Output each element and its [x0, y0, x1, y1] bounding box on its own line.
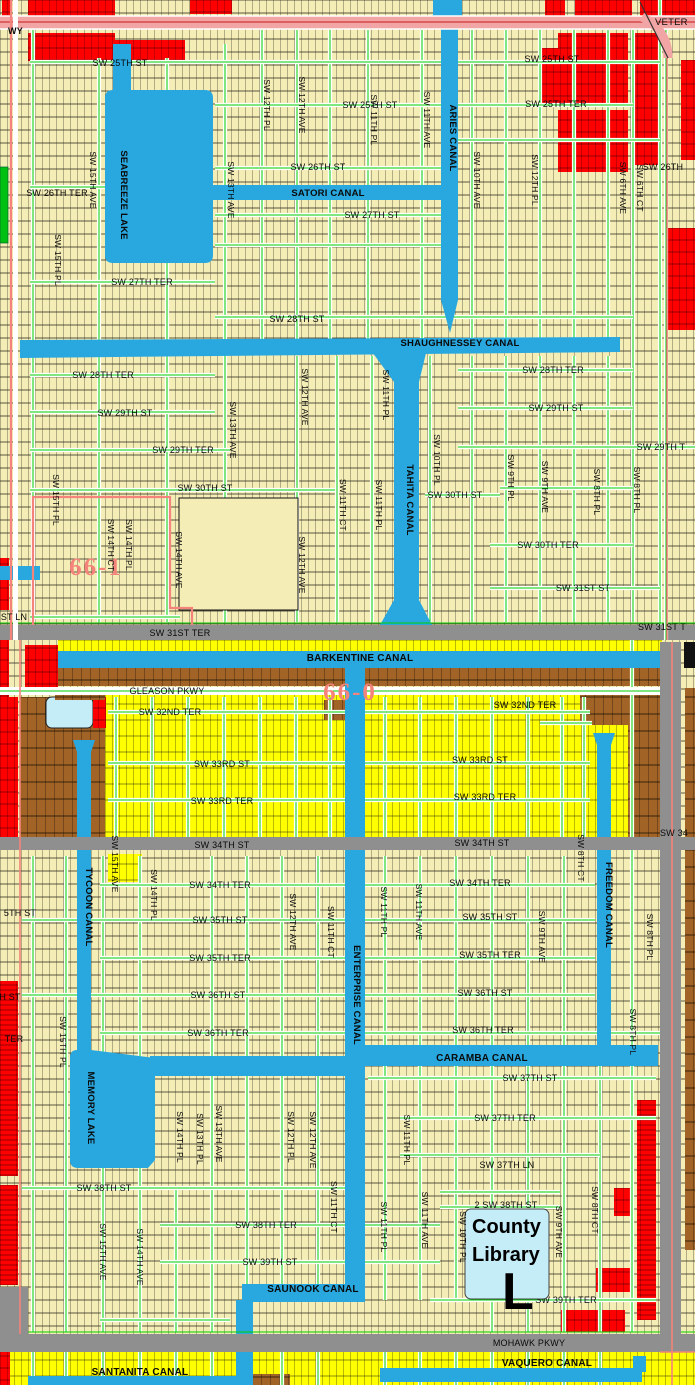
svg-text:SW 34TH TER: SW 34TH TER — [449, 878, 511, 888]
svg-text:SW 37TH TER: SW 37TH TER — [474, 1113, 536, 1123]
svg-text:SW 11TH AVE: SW 11TH AVE — [420, 1192, 430, 1249]
svg-text:SW 34TH TER: SW 34TH TER — [189, 880, 251, 890]
svg-text:SW 36TH TER: SW 36TH TER — [452, 1025, 514, 1035]
svg-text:SW 13TH AVE: SW 13TH AVE — [228, 401, 238, 458]
svg-text:SW 9TH PL: SW 9TH PL — [506, 455, 516, 502]
svg-text:SW 11TH CT: SW 11TH CT — [329, 1181, 339, 1233]
svg-text:SW 29TH ST: SW 29TH ST — [97, 408, 152, 418]
svg-text:SW 8TH PL: SW 8TH PL — [628, 1009, 638, 1056]
svg-text:SW 35TH ST: SW 35TH ST — [192, 915, 247, 925]
svg-text:SW 11TH AVE: SW 11TH AVE — [422, 92, 432, 149]
svg-text:SW 34: SW 34 — [660, 828, 688, 838]
svg-text:SW 15TH AVE: SW 15TH AVE — [88, 151, 98, 208]
svg-text:SW 15TH AVE: SW 15TH AVE — [98, 1223, 108, 1280]
svg-text:SW 13TH AVE: SW 13TH AVE — [214, 1105, 224, 1162]
svg-text:SW 11TH PL: SW 11TH PL — [379, 1202, 389, 1253]
svg-text:SW 35TH TER: SW 35TH TER — [459, 950, 521, 960]
svg-text:SW 31ST T: SW 31ST T — [638, 622, 686, 632]
svg-text:SW 33RD TER: SW 33RD TER — [454, 792, 517, 802]
svg-text:SW 35TH TER: SW 35TH TER — [189, 953, 251, 963]
svg-text:5TH ST: 5TH ST — [4, 908, 37, 918]
svg-text:County: County — [472, 1216, 542, 1238]
svg-text:MEMORY LAKE: MEMORY LAKE — [85, 1072, 96, 1145]
svg-text:SW 12TH AVE: SW 12TH AVE — [297, 536, 307, 593]
svg-text:SW 31ST TER: SW 31ST TER — [150, 628, 211, 638]
svg-text:SANTANITA CANAL: SANTANITA CANAL — [92, 1367, 189, 1378]
svg-text:SW 29TH T: SW 29TH T — [637, 442, 686, 452]
svg-text:SAUNOOK CANAL: SAUNOOK CANAL — [267, 1284, 359, 1295]
svg-text:SW 11TH PL: SW 11TH PL — [381, 370, 391, 421]
svg-text:GLEASON PKWY: GLEASON PKWY — [130, 686, 205, 696]
svg-text:SW 34TH ST: SW 34TH ST — [194, 840, 249, 850]
svg-text:SW 33RD ST: SW 33RD ST — [452, 755, 508, 765]
svg-text:SW 28TH TER: SW 28TH TER — [522, 365, 584, 375]
svg-text:SW 27TH TER: SW 27TH TER — [111, 277, 173, 287]
svg-text:SW 39TH ST: SW 39TH ST — [242, 1257, 297, 1267]
svg-text:SEABREEZE LAKE: SEABREEZE LAKE — [118, 150, 129, 239]
svg-text:SW 30TH TER: SW 30TH TER — [517, 540, 579, 550]
svg-text:ARIES CANAL: ARIES CANAL — [447, 104, 458, 171]
svg-text:SW 13TH PL: SW 13TH PL — [195, 1113, 205, 1165]
svg-text:SW 14TH AVE: SW 14TH AVE — [174, 531, 184, 588]
svg-text:SW 32ND TER: SW 32ND TER — [494, 700, 557, 710]
svg-text:SATORI CANAL: SATORI CANAL — [291, 188, 364, 199]
svg-text:SW 38TH TER: SW 38TH TER — [235, 1220, 297, 1230]
svg-text:SW 36TH ST: SW 36TH ST — [190, 990, 245, 1000]
svg-text:SW 12TH AVE: SW 12TH AVE — [297, 76, 307, 133]
svg-text:SW 11TH CT: SW 11TH CT — [338, 479, 348, 531]
svg-text:SW 30TH ST: SW 30TH ST — [177, 483, 232, 493]
svg-text:SW 8TH PL: SW 8TH PL — [645, 914, 655, 961]
svg-text:SW 14TH CT: SW 14TH CT — [106, 519, 116, 572]
svg-text:SW 32ND TER: SW 32ND TER — [139, 707, 202, 717]
svg-text:SW 10TH AVE: SW 10TH AVE — [472, 151, 482, 208]
svg-text:FREEDOM CANAL: FREEDOM CANAL — [603, 862, 614, 948]
svg-text:SW 6TH AVE: SW 6TH AVE — [618, 162, 628, 215]
svg-text:SW 11TH PL: SW 11TH PL — [402, 1115, 412, 1166]
svg-text:SW 15TH PL: SW 15TH PL — [51, 474, 61, 526]
svg-text:SW 11TH AVE: SW 11TH AVE — [414, 884, 424, 941]
svg-text:SW 38TH ST: SW 38TH ST — [76, 1183, 131, 1193]
svg-text:H ST: H ST — [0, 992, 21, 1002]
svg-text:ST LN: ST LN — [1, 612, 27, 622]
svg-text:SW 9TH AVE: SW 9TH AVE — [554, 1206, 564, 1259]
svg-text:SW 36TH ST: SW 36TH ST — [457, 988, 512, 998]
svg-text:SW 25TH ST: SW 25TH ST — [92, 58, 147, 68]
svg-text:SW 8TH CT: SW 8TH CT — [576, 834, 586, 882]
svg-text:SW 9TH AVE: SW 9TH AVE — [537, 911, 547, 964]
svg-text:SW 12TH PL: SW 12TH PL — [262, 79, 272, 131]
svg-text:SW 25TH ST: SW 25TH ST — [524, 54, 579, 64]
svg-text:SW 11TH PL: SW 11TH PL — [369, 95, 379, 146]
svg-text:SW 11TH PL: SW 11TH PL — [374, 480, 384, 531]
svg-text:SW 29TH ST: SW 29TH ST — [528, 403, 583, 413]
svg-text:SW 12TH PL: SW 12TH PL — [530, 154, 540, 206]
svg-text:SW 33RD TER: SW 33RD TER — [191, 796, 254, 806]
svg-text:SW 9TH AVE: SW 9TH AVE — [540, 461, 550, 514]
svg-text:SW 12TH AVE: SW 12TH AVE — [308, 1111, 318, 1168]
svg-text:SW 14TH PL: SW 14TH PL — [149, 869, 159, 921]
svg-text:SW 11TH CT: SW 11TH CT — [326, 906, 336, 958]
svg-text:CARAMBA CANAL: CARAMBA CANAL — [436, 1053, 528, 1064]
svg-text:SW 13TH AVE: SW 13TH AVE — [226, 161, 236, 218]
svg-text:SW 10TH PL: SW 10TH PL — [432, 434, 442, 486]
svg-text:SHAUGHNESSEY CANAL: SHAUGHNESSEY CANAL — [400, 338, 519, 349]
svg-text:SW 26TH ST: SW 26TH ST — [290, 162, 345, 172]
svg-text:SW 14TH AVE: SW 14TH AVE — [135, 1228, 145, 1285]
svg-text:SW 31ST ST: SW 31ST ST — [556, 583, 611, 593]
svg-text:SW 15TH PL: SW 15TH PL — [53, 234, 63, 286]
svg-text:ENTERPRISE CANAL: ENTERPRISE CANAL — [351, 945, 362, 1045]
svg-text:SW 10TH PL: SW 10TH PL — [458, 1211, 468, 1263]
svg-text:WY: WY — [8, 26, 23, 36]
svg-text:SW 8TH PL: SW 8TH PL — [592, 469, 602, 516]
svg-text:SW 34TH ST: SW 34TH ST — [454, 838, 509, 848]
svg-text:SW 29TH TER: SW 29TH TER — [152, 445, 214, 455]
svg-text:SW 27TH ST: SW 27TH ST — [344, 210, 399, 220]
svg-text:VAQUERO CANAL: VAQUERO CANAL — [502, 1358, 592, 1369]
svg-text:SW 25TH TER: SW 25TH TER — [525, 99, 587, 109]
svg-text:MOHAWK PKWY: MOHAWK PKWY — [493, 1338, 565, 1348]
svg-text:TYCOON CANAL: TYCOON CANAL — [83, 868, 94, 947]
svg-text:SW 14TH PL: SW 14TH PL — [124, 519, 134, 571]
svg-text:SW 26TH: SW 26TH — [643, 162, 683, 172]
svg-text:SW 8TH CT: SW 8TH CT — [590, 1186, 600, 1234]
svg-text:SW 12TH AVE: SW 12TH AVE — [288, 893, 298, 950]
svg-text:SW 35TH ST: SW 35TH ST — [462, 912, 517, 922]
svg-text:SW 26TH TER: SW 26TH TER — [26, 188, 88, 198]
svg-text:SW 28TH ST: SW 28TH ST — [269, 314, 324, 324]
svg-text:SW 37TH LN: SW 37TH LN — [479, 1160, 534, 1170]
svg-text:SW 12TH PL: SW 12TH PL — [286, 1111, 296, 1163]
svg-text:SW 37TH ST: SW 37TH ST — [502, 1073, 557, 1083]
svg-text:VETER: VETER — [655, 17, 688, 28]
svg-text:SW 15TH AVE: SW 15TH AVE — [110, 835, 120, 892]
svg-text:TAHITA CANAL: TAHITA CANAL — [404, 464, 415, 535]
svg-text:SW 36TH TER: SW 36TH TER — [187, 1028, 249, 1038]
svg-text:SW 12TH AVE: SW 12TH AVE — [300, 368, 310, 425]
svg-text:L: L — [502, 1263, 534, 1321]
svg-text:SW 11TH PL: SW 11TH PL — [379, 887, 389, 938]
svg-text:66-0: 66-0 — [323, 679, 377, 706]
svg-text:SW 14TH PL: SW 14TH PL — [175, 1111, 185, 1163]
svg-text:SW 8TH PL: SW 8TH PL — [632, 467, 642, 514]
svg-text:SW 30TH ST: SW 30TH ST — [427, 490, 482, 500]
svg-text:SW 33RD ST: SW 33RD ST — [194, 759, 250, 769]
svg-text:TER: TER — [5, 1034, 24, 1044]
svg-text:SW 6TH CT: SW 6TH CT — [635, 164, 645, 212]
svg-text:SW 28TH TER: SW 28TH TER — [72, 370, 134, 380]
svg-text:BARKENTINE CANAL: BARKENTINE CANAL — [307, 653, 414, 664]
svg-text:SW 15TH PL: SW 15TH PL — [58, 1016, 68, 1068]
